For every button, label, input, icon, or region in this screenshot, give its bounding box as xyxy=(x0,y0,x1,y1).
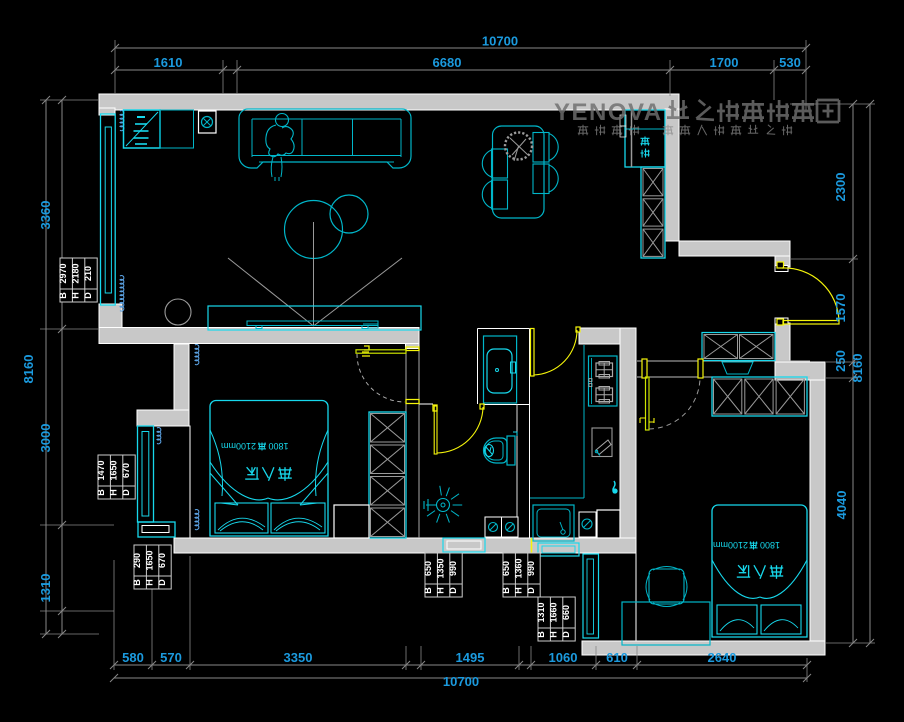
svg-text:2180: 2180 xyxy=(71,263,81,283)
svg-text:D: D xyxy=(561,631,571,638)
svg-text:B: B xyxy=(132,579,142,586)
svg-text:D: D xyxy=(526,587,536,594)
svg-text:580: 580 xyxy=(122,650,144,665)
svg-text:3360: 3360 xyxy=(38,201,53,230)
svg-text:B: B xyxy=(96,489,106,496)
svg-text:H: H xyxy=(71,292,81,299)
svg-text:1360: 1360 xyxy=(514,558,524,578)
svg-text:1660: 1660 xyxy=(549,602,559,622)
svg-text:D: D xyxy=(83,292,93,299)
svg-text:3350: 3350 xyxy=(284,650,313,665)
svg-text:YENOVA: YENOVA xyxy=(554,99,663,126)
svg-text:6680: 6680 xyxy=(433,55,462,70)
svg-text:3000: 3000 xyxy=(38,424,53,453)
svg-text:H: H xyxy=(109,489,119,496)
svg-text:1350: 1350 xyxy=(436,558,446,578)
svg-text:1650: 1650 xyxy=(145,550,155,570)
svg-text:660: 660 xyxy=(561,605,571,620)
svg-text:650: 650 xyxy=(423,561,433,576)
svg-text:1570: 1570 xyxy=(833,294,848,323)
svg-text:D: D xyxy=(121,489,131,496)
svg-text:B: B xyxy=(58,292,68,299)
svg-text:1310: 1310 xyxy=(536,602,546,622)
svg-text:530: 530 xyxy=(779,55,801,70)
svg-text:570: 570 xyxy=(160,650,182,665)
svg-text:290: 290 xyxy=(132,553,142,568)
svg-text:650: 650 xyxy=(501,561,511,576)
svg-text:1470: 1470 xyxy=(96,460,106,480)
svg-text:1700: 1700 xyxy=(710,55,739,70)
svg-text:1310: 1310 xyxy=(38,574,53,603)
svg-text:2640: 2640 xyxy=(708,650,737,665)
svg-text:2100mm: 2100mm xyxy=(713,540,748,550)
svg-text:210: 210 xyxy=(83,266,93,281)
svg-text:2100mm: 2100mm xyxy=(221,441,256,451)
svg-text:H: H xyxy=(549,631,559,638)
svg-text:D: D xyxy=(448,587,458,594)
svg-text:H: H xyxy=(436,587,446,594)
svg-text:250: 250 xyxy=(833,350,848,372)
svg-text:H: H xyxy=(145,579,155,586)
svg-text:1800: 1800 xyxy=(760,540,780,550)
svg-text:B: B xyxy=(501,587,511,594)
svg-text:10700: 10700 xyxy=(443,674,479,689)
svg-text:990: 990 xyxy=(526,561,536,576)
svg-text:4040: 4040 xyxy=(834,491,849,520)
svg-text:D: D xyxy=(157,579,167,586)
svg-text:670: 670 xyxy=(121,463,131,478)
svg-text:990: 990 xyxy=(448,561,458,576)
svg-text:1650: 1650 xyxy=(109,460,119,480)
svg-text:1610: 1610 xyxy=(154,55,183,70)
svg-text:2300: 2300 xyxy=(833,173,848,202)
svg-text:1060: 1060 xyxy=(549,650,578,665)
svg-text:2970: 2970 xyxy=(58,263,68,283)
svg-text:1800: 1800 xyxy=(269,441,289,451)
svg-text:1495: 1495 xyxy=(456,650,485,665)
svg-text:10700: 10700 xyxy=(482,34,518,49)
svg-text:H: H xyxy=(514,587,524,594)
svg-text:670: 670 xyxy=(157,553,167,568)
svg-text:B: B xyxy=(536,631,546,638)
svg-text:B: B xyxy=(423,587,433,594)
svg-text:8160: 8160 xyxy=(21,355,36,384)
svg-text:610: 610 xyxy=(606,650,628,665)
